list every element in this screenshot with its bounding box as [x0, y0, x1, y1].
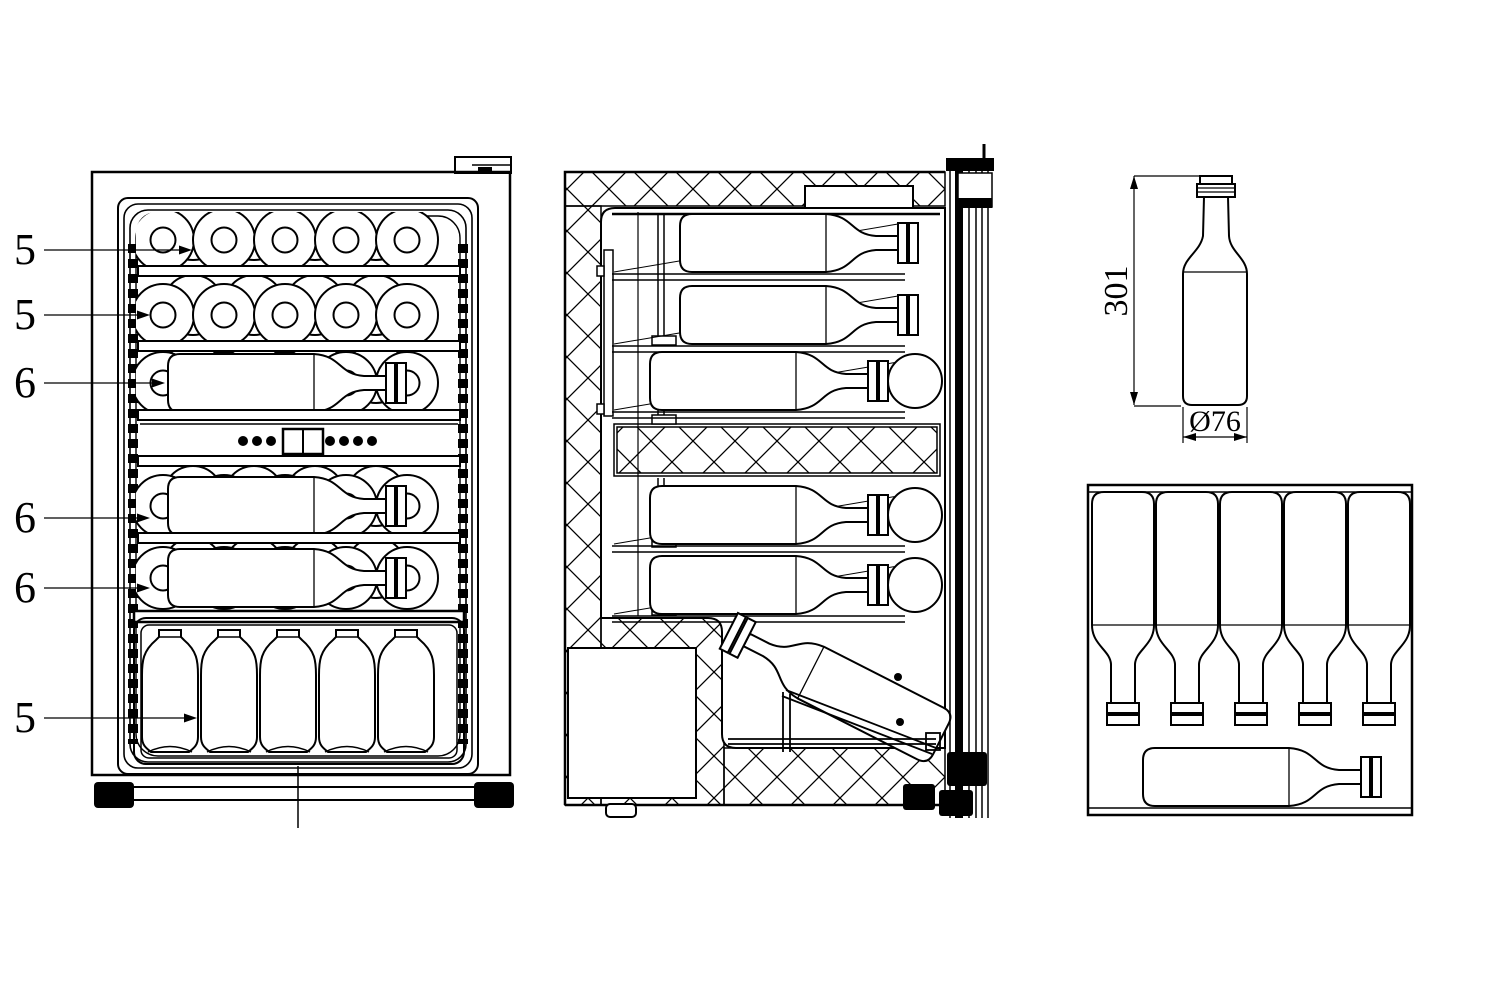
panel-button[interactable]: [367, 436, 377, 446]
side-section-view: [565, 144, 994, 818]
left-foot: [94, 782, 134, 808]
height-dimension-label: 301: [1098, 266, 1135, 317]
bottom-rack: [134, 618, 464, 764]
bottle-dimension-drawing: 301 Ø76: [1098, 176, 1247, 443]
panel-button[interactable]: [266, 436, 276, 446]
panel-button[interactable]: [339, 436, 349, 446]
panel-button[interactable]: [325, 436, 335, 446]
part-label: 6: [14, 493, 36, 542]
panel-button[interactable]: [238, 436, 248, 446]
technical-drawing-page: 301 Ø76 5 5 6 6 6 5: [0, 0, 1505, 985]
panel-button[interactable]: [353, 436, 363, 446]
part-label: 6: [14, 563, 36, 612]
diameter-dimension-label: Ø76: [1189, 405, 1241, 438]
bottle-row-2: [132, 275, 438, 346]
diameter-dimension: Ø76: [1183, 405, 1247, 443]
part-label: 5: [14, 693, 36, 742]
panel-button[interactable]: [252, 436, 262, 446]
wine-bottle-outline: [1183, 176, 1247, 405]
lamp-housing: [805, 186, 913, 208]
bottle-row-3: [132, 343, 438, 414]
top-hinge: [946, 144, 994, 208]
wine-cooler-diagram: 301 Ø76 5 5 6 6 6 5: [0, 0, 1505, 985]
front-view: [92, 157, 514, 828]
top-hinge-cover: [455, 157, 511, 173]
compressor: [568, 648, 696, 798]
shelf-rows: [132, 200, 438, 609]
bottle-row-5: [132, 538, 438, 609]
rear-foot: [606, 804, 636, 817]
part-label: 6: [14, 358, 36, 407]
part-label: 5: [14, 290, 36, 339]
horizontal-bottle: [1143, 748, 1381, 806]
shelf-top-view: [1088, 485, 1412, 815]
zone-divider: [614, 424, 940, 476]
control-panel: [140, 424, 458, 454]
right-foot: [474, 782, 514, 808]
part-label: 5: [14, 225, 36, 274]
bottle-row-4: [132, 466, 438, 537]
